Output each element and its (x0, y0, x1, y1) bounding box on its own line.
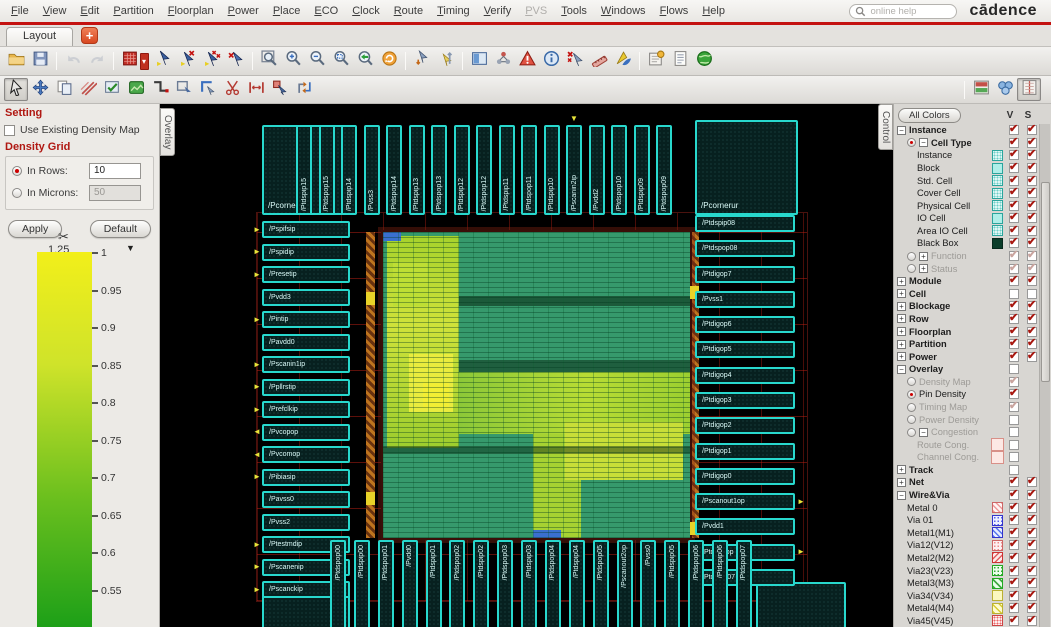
expand-icon[interactable]: + (897, 478, 906, 487)
layer-color-swatch[interactable] (992, 527, 1003, 538)
io-pad[interactable]: /Ptdspip12 (454, 125, 470, 215)
io-pad[interactable]: /Ptdigop5 (695, 341, 795, 358)
collapse-icon[interactable]: − (919, 138, 928, 147)
selectability-checkbox[interactable] (1027, 540, 1037, 550)
corner-cell-ur[interactable]: /Pcornerur (695, 120, 798, 215)
io-pad[interactable]: /Ptdspip03 (521, 540, 537, 627)
deselect-all-flightlines-button[interactable] (224, 50, 248, 73)
selectability-checkbox[interactable] (1027, 125, 1037, 135)
layer-row-black-box[interactable]: Black Box (894, 237, 1041, 250)
selectability-checkbox[interactable] (1027, 138, 1037, 148)
selectability-checkbox[interactable] (1027, 201, 1037, 211)
layer-color-swatch[interactable] (992, 615, 1003, 626)
layer-row-via-01[interactable]: Via 01 (894, 514, 1041, 527)
layer-radio[interactable] (907, 138, 916, 147)
io-pad[interactable]: /Pintip (262, 311, 350, 328)
layer-color-swatch[interactable] (992, 565, 1003, 576)
dropdown-caret-icon[interactable]: ▾ (140, 53, 149, 70)
visibility-checkbox[interactable] (1009, 553, 1019, 563)
undo-button[interactable] (61, 50, 85, 73)
layer-row-std-cell[interactable]: Std. Cell (894, 174, 1041, 187)
layer-row-metal1-m1-[interactable]: Metal1(M1) (894, 527, 1041, 540)
io-pad[interactable]: /Pvcomop (262, 446, 350, 463)
io-pad[interactable]: /Ptdspop02 (449, 540, 465, 627)
layer-color-swatch[interactable] (992, 578, 1003, 589)
layer-row-pin-density[interactable]: Pin Density (894, 388, 1041, 401)
move-tool-button[interactable] (28, 78, 52, 101)
layer-color-swatch[interactable] (992, 175, 1003, 186)
overlay-side-tab[interactable]: Overlay (160, 108, 175, 156)
visibility-checkbox[interactable] (1009, 188, 1019, 198)
selectability-checkbox[interactable] (1027, 503, 1037, 513)
edit-rectangle-button[interactable] (172, 78, 196, 101)
layer-row-density-map[interactable]: Density Map (894, 376, 1041, 389)
layer-color-swatch[interactable] (991, 451, 1004, 464)
io-pad[interactable]: /Ptdspip04 (569, 540, 585, 627)
layer-row-route-cong-[interactable]: Route Cong. (894, 438, 1041, 451)
deselect-flightline-button[interactable] (176, 50, 200, 73)
layer-color-swatch[interactable] (992, 188, 1003, 199)
layer-row-congestion[interactable]: −Congestion (894, 426, 1041, 439)
visibility-checkbox[interactable] (1009, 566, 1019, 576)
layer-row-net[interactable]: +Net (894, 476, 1041, 489)
in-rows-radio[interactable] (12, 166, 22, 176)
io-pad[interactable]: /Pspidip (262, 244, 350, 261)
io-pad[interactable]: /Ptdigop6 (695, 316, 795, 333)
visibility-checkbox[interactable] (1009, 150, 1019, 160)
layer-radio[interactable] (907, 264, 916, 273)
use-existing-density-checkbox[interactable] (4, 125, 15, 136)
add-tab-button[interactable]: + (81, 27, 98, 44)
visibility-checkbox[interactable] (1009, 276, 1019, 286)
select-tool-button[interactable] (4, 78, 28, 101)
menu-file[interactable]: File (4, 3, 36, 19)
io-pad[interactable]: /Ptdigop7 (695, 266, 795, 283)
layer-radio[interactable] (907, 377, 916, 386)
zoom-selected-button[interactable] (329, 50, 353, 73)
panel-toggle-button[interactable] (1017, 78, 1041, 101)
menu-view[interactable]: View (36, 3, 74, 19)
layer-row-module[interactable]: +Module (894, 275, 1041, 288)
all-colors-button[interactable]: All Colors (898, 108, 961, 123)
io-pad[interactable]: /Ptdspop10 (611, 125, 627, 215)
selectability-checkbox[interactable] (1027, 327, 1037, 337)
visibility-checkbox[interactable] (1009, 415, 1019, 425)
in-microns-input[interactable]: 50 (89, 185, 141, 201)
io-pad[interactable]: /Ptdspop15 (319, 125, 335, 215)
io-pad[interactable]: /Ptdspop13 (431, 125, 447, 215)
layer-color-swatch[interactable] (992, 163, 1003, 174)
io-pad[interactable]: /Pvdd0 (402, 540, 418, 627)
default-button[interactable]: Default (90, 220, 151, 238)
io-pad[interactable]: /Ptdspop09 (656, 125, 672, 215)
io-pad[interactable]: /Ptdigop3 (695, 392, 795, 409)
palette-scrollbar[interactable] (1039, 124, 1050, 627)
menu-route[interactable]: Route (387, 3, 430, 19)
in-rows-input[interactable]: 10 (89, 163, 141, 179)
layer-radio[interactable] (907, 403, 916, 412)
colorbar-max-dropdown[interactable]: ▼ (126, 243, 135, 253)
io-pad[interactable]: /Ppllrstip (262, 379, 350, 396)
selectability-checkbox[interactable] (1027, 276, 1037, 286)
violation-browser-button[interactable] (515, 50, 539, 73)
collapse-icon[interactable]: − (897, 491, 906, 500)
io-pad[interactable]: /Ptdspop08 (695, 240, 795, 257)
layer-row-via45-v45-[interactable]: Via45(V45) (894, 615, 1041, 627)
layer-row-metal-0[interactable]: Metal 0 (894, 501, 1041, 514)
menu-eco[interactable]: ECO (307, 3, 345, 19)
io-pad[interactable]: /Ptdigop2 (695, 417, 795, 434)
layer-row-wire-via[interactable]: −Wire&Via (894, 489, 1041, 502)
log-viewer-button[interactable] (668, 50, 692, 73)
expand-icon[interactable]: + (919, 264, 928, 273)
selectability-checkbox[interactable] (1027, 528, 1037, 538)
layer-row-function[interactable]: +Function (894, 250, 1041, 263)
design-hierarchy-button[interactable] (491, 50, 515, 73)
selectability-checkbox[interactable] (1027, 301, 1037, 311)
io-pad[interactable]: /Ptdigop1 (695, 443, 795, 460)
layer-color-swatch[interactable] (992, 552, 1003, 563)
io-pad[interactable]: /Ptdspip02 (473, 540, 489, 627)
layer-color-swatch[interactable] (992, 603, 1003, 614)
selectability-checkbox[interactable] (1027, 289, 1037, 299)
collapse-icon[interactable]: − (919, 428, 928, 437)
spacing-tool-button[interactable] (244, 78, 268, 101)
expand-icon[interactable]: + (919, 252, 928, 261)
expand-icon[interactable]: + (897, 277, 906, 286)
io-pad[interactable]: /Pibiasip (262, 469, 350, 486)
select-all-flightlines-button[interactable] (200, 50, 224, 73)
visibility-checkbox[interactable] (1009, 616, 1019, 626)
selectability-checkbox[interactable] (1027, 150, 1037, 160)
io-pad[interactable]: /Ptdspip01 (426, 540, 442, 627)
zoom-fit-button[interactable] (257, 50, 281, 73)
layer-row-power[interactable]: +Power (894, 350, 1041, 363)
io-pad[interactable]: /Pvdd3 (262, 289, 350, 306)
selectability-checkbox[interactable] (1027, 163, 1037, 173)
visibility-checkbox[interactable] (1009, 226, 1019, 236)
set-view-down-button[interactable] (410, 50, 434, 73)
visibility-checkbox[interactable] (1009, 238, 1019, 248)
selectability-checkbox[interactable] (1027, 176, 1037, 186)
layer-row-block[interactable]: Block (894, 162, 1041, 175)
apply-button[interactable]: Apply (8, 220, 62, 238)
layer-row-track[interactable]: +Track (894, 464, 1041, 477)
menu-verify[interactable]: Verify (477, 3, 519, 19)
density-color-scale[interactable] (37, 252, 92, 627)
layer-row-status[interactable]: +Status (894, 262, 1041, 275)
snapshot-button[interactable] (124, 78, 148, 101)
visibility-checkbox[interactable] (1009, 251, 1019, 261)
edit-form-button[interactable] (644, 50, 668, 73)
design-browser-button[interactable] (993, 78, 1017, 101)
layer-row-overlay[interactable]: −Overlay (894, 363, 1041, 376)
visibility-checkbox[interactable] (1009, 427, 1019, 437)
layer-color-button[interactable]: ▾ (118, 50, 152, 73)
io-pad[interactable]: /Pvdd2 (589, 125, 605, 215)
visibility-checkbox[interactable] (1009, 201, 1019, 211)
visibility-checkbox[interactable] (1009, 540, 1019, 550)
io-pad[interactable]: /Ptdspip11 (499, 125, 515, 215)
visibility-checkbox[interactable] (1009, 301, 1019, 311)
io-pad[interactable]: /Pavss0 (262, 491, 350, 508)
menu-flows[interactable]: Flows (653, 3, 696, 19)
selectability-checkbox[interactable] (1027, 566, 1037, 576)
selectability-checkbox[interactable] (1027, 264, 1037, 274)
visibility-checkbox[interactable] (1009, 402, 1019, 412)
layer-row-via34-v34-[interactable]: Via34(V34) (894, 589, 1041, 602)
layer-row-power-density[interactable]: Power Density (894, 413, 1041, 426)
collapse-icon[interactable]: − (897, 365, 906, 374)
expand-icon[interactable]: + (897, 302, 906, 311)
io-pad[interactable]: /Prefclkip (262, 401, 350, 418)
visibility-checkbox[interactable] (1009, 327, 1019, 337)
layer-color-swatch[interactable] (991, 438, 1004, 451)
layer-radio[interactable] (907, 390, 916, 399)
layer-row-area-io-cell[interactable]: Area IO Cell (894, 225, 1041, 238)
layer-row-row[interactable]: +Row (894, 313, 1041, 326)
selectability-checkbox[interactable] (1027, 515, 1037, 525)
layer-radio[interactable] (907, 415, 916, 424)
io-pad[interactable]: /Ptdspop03 (497, 540, 513, 627)
visibility-checkbox[interactable] (1009, 440, 1019, 450)
io-pad[interactable]: /Ptdspip06 (712, 540, 728, 627)
layer-color-swatch[interactable] (992, 515, 1003, 526)
selectability-checkbox[interactable] (1027, 603, 1037, 613)
io-pad[interactable]: /Ptdspip10 (544, 125, 560, 215)
layer-row-metal3-m3-[interactable]: Metal3(M3) (894, 577, 1041, 590)
visibility-checkbox[interactable] (1009, 591, 1019, 601)
menu-power[interactable]: Power (221, 3, 266, 19)
layer-color-swatch[interactable] (992, 590, 1003, 601)
visibility-checkbox[interactable] (1009, 364, 1019, 374)
online-help-search[interactable]: online help (849, 4, 957, 19)
visibility-checkbox[interactable] (1009, 352, 1019, 362)
menu-pvs[interactable]: PVS (518, 3, 554, 19)
visibility-checkbox[interactable] (1009, 477, 1019, 487)
io-pad[interactable]: /Ptdigop0 (695, 468, 795, 485)
color-preferences-button[interactable] (611, 50, 635, 73)
visibility-checkbox[interactable] (1009, 339, 1019, 349)
io-pad[interactable]: /Ptdspip15 (296, 125, 312, 215)
visibility-checkbox[interactable] (1009, 125, 1019, 135)
io-pad[interactable]: /Ptdspop12 (476, 125, 492, 215)
layer-color-swatch[interactable] (992, 502, 1003, 513)
layer-color-swatch[interactable] (992, 225, 1003, 236)
menu-place[interactable]: Place (266, 3, 308, 19)
io-pad[interactable]: /Ptdspop04 (545, 540, 561, 627)
selectability-checkbox[interactable] (1027, 616, 1037, 626)
layer-row-cell[interactable]: +Cell (894, 288, 1041, 301)
io-pad[interactable]: /Ptdspip08 (695, 215, 795, 232)
scrollbar-thumb[interactable] (1041, 182, 1050, 382)
menu-partition[interactable]: Partition (106, 3, 160, 19)
menu-timing[interactable]: Timing (430, 3, 477, 19)
in-microns-radio[interactable] (12, 188, 22, 198)
zoom-out-button[interactable] (305, 50, 329, 73)
io-pad[interactable]: /Ptdspip05 (664, 540, 680, 627)
layer-color-swatch[interactable] (992, 150, 1003, 161)
io-pad[interactable]: /Ptdspop06 (688, 540, 704, 627)
visibility-checkbox[interactable] (1009, 176, 1019, 186)
visibility-checkbox[interactable] (1009, 314, 1019, 324)
layer-row-physical-cell[interactable]: Physical Cell (894, 199, 1041, 212)
summary-report-button[interactable] (467, 50, 491, 73)
design-info-button[interactable] (539, 50, 563, 73)
io-pad[interactable]: /Ptdspop01 (378, 540, 394, 627)
layer-row-blockage[interactable]: +Blockage (894, 300, 1041, 313)
visibility-checkbox[interactable] (1009, 213, 1019, 223)
selectability-checkbox[interactable] (1027, 188, 1037, 198)
expand-icon[interactable]: + (897, 289, 906, 298)
layer-color-swatch[interactable] (992, 200, 1003, 211)
visibility-checkbox[interactable] (1009, 515, 1019, 525)
selectability-checkbox[interactable] (1027, 591, 1037, 601)
layer-color-swatch[interactable] (992, 540, 1003, 551)
visibility-checkbox[interactable] (1009, 138, 1019, 148)
attach-tool-button[interactable] (268, 78, 292, 101)
layer-row-via23-v23-[interactable]: Via23(V23) (894, 564, 1041, 577)
layer-row-instance[interactable]: −Instance (894, 124, 1041, 137)
selectability-checkbox[interactable] (1027, 251, 1037, 261)
io-pad[interactable]: /Pscanout2op (617, 540, 633, 627)
menu-clock[interactable]: Clock (345, 3, 387, 19)
flip-tool-button[interactable] (292, 78, 316, 101)
io-pad[interactable]: /Pvss0 (640, 540, 656, 627)
selectability-checkbox[interactable] (1027, 226, 1037, 236)
menu-help[interactable]: Help (695, 3, 732, 19)
selectability-checkbox[interactable] (1027, 352, 1037, 362)
expand-icon[interactable]: + (897, 352, 906, 361)
layer-row-metal4-m4-[interactable]: Metal4(M4) (894, 602, 1041, 615)
layer-row-channel-cong-[interactable]: Channel Cong. (894, 451, 1041, 464)
io-pad[interactable]: /Pvdd1 (695, 518, 795, 535)
menu-tools[interactable]: Tools (554, 3, 594, 19)
set-view-up-button[interactable] (434, 50, 458, 73)
io-pad[interactable]: /Pvcopop (262, 424, 350, 441)
io-pad[interactable]: /Ptdigop4 (695, 367, 795, 384)
io-pad[interactable]: /Ptdspop14 (386, 125, 402, 215)
copy-tool-button[interactable] (52, 78, 76, 101)
move-reshape-tool-button[interactable] (196, 78, 220, 101)
layer-radio[interactable] (907, 428, 916, 437)
selectability-checkbox[interactable] (1027, 213, 1037, 223)
visibility-checkbox[interactable] (1009, 528, 1019, 538)
selectability-checkbox[interactable] (1027, 314, 1037, 324)
selectability-checkbox[interactable] (1027, 477, 1037, 487)
expand-icon[interactable]: + (897, 327, 906, 336)
io-pad[interactable]: /Pvss1 (695, 291, 795, 308)
cut-wire-tool-button[interactable] (220, 78, 244, 101)
io-pad[interactable]: /Pvss3 (364, 125, 380, 215)
ruler-button[interactable] (587, 50, 611, 73)
layer-radio[interactable] (907, 252, 916, 261)
selectability-checkbox[interactable] (1027, 490, 1037, 500)
deselect-all-button[interactable] (563, 50, 587, 73)
selectability-checkbox[interactable] (1027, 578, 1037, 588)
control-side-tab[interactable]: Control (878, 104, 893, 150)
menu-floorplan[interactable]: Floorplan (161, 3, 221, 19)
layer-row-instance[interactable]: Instance (894, 149, 1041, 162)
layer-color-swatch[interactable] (992, 213, 1003, 224)
open-button[interactable] (4, 50, 28, 73)
io-pad[interactable]: /Presetip (262, 266, 350, 283)
io-pad[interactable]: /Ptdspop05 (593, 540, 609, 627)
zoom-previous-button[interactable] (353, 50, 377, 73)
io-pad[interactable]: /Pscanin2ip (566, 125, 582, 215)
io-pad[interactable]: /Ptdspop07 (736, 540, 752, 627)
layer-row-metal2-m2-[interactable]: Metal2(M2) (894, 552, 1041, 565)
display-options-button[interactable] (969, 78, 993, 101)
save-button[interactable] (28, 50, 52, 73)
collapse-icon[interactable]: − (897, 126, 906, 135)
layer-row-timing-map[interactable]: Timing Map (894, 401, 1041, 414)
selectability-checkbox[interactable] (1027, 339, 1037, 349)
zoom-in-button[interactable] (281, 50, 305, 73)
layer-color-swatch[interactable] (992, 238, 1003, 249)
visibility-checkbox[interactable] (1009, 289, 1019, 299)
io-pad[interactable]: /Ptdspip14 (341, 125, 357, 215)
visibility-checkbox[interactable] (1009, 465, 1019, 475)
expand-icon[interactable]: + (897, 340, 906, 349)
io-pad[interactable]: /Ptdspop00 (330, 540, 346, 627)
layer-row-via12-v12-[interactable]: Via12(V12) (894, 539, 1041, 552)
io-pad[interactable]: /Ptdspip13 (409, 125, 425, 215)
corner-cell-lr[interactable] (756, 582, 846, 627)
tab-layout[interactable]: Layout (6, 27, 73, 46)
io-pad[interactable]: /Ptdspop11 (521, 125, 537, 215)
layer-row-io-cell[interactable]: IO Cell (894, 212, 1041, 225)
layout-canvas[interactable]: Overlay Control /Pcornerul /Pcornerur /P… (160, 104, 893, 627)
menu-windows[interactable]: Windows (594, 3, 653, 19)
redraw-button[interactable] (377, 50, 401, 73)
expand-icon[interactable]: + (897, 314, 906, 323)
io-pad[interactable]: /Pavdd0 (262, 334, 350, 351)
bottom-pin-row: /Ptdspop00/Ptdspip00/Ptdspop01/Pvdd0/Ptd… (330, 540, 752, 627)
visibility-checkbox[interactable] (1009, 163, 1019, 173)
layer-row-cell-type[interactable]: −Cell Type (894, 137, 1041, 150)
selectability-checkbox[interactable] (1027, 238, 1037, 248)
visibility-checkbox[interactable] (1009, 503, 1019, 513)
layer-row-floorplan[interactable]: +Floorplan (894, 325, 1041, 338)
create-wire-tool-button[interactable] (148, 78, 172, 101)
io-pad[interactable]: /Pvss2 (262, 514, 350, 531)
visibility-checkbox[interactable] (1009, 490, 1019, 500)
online-docs-button[interactable] (692, 50, 716, 73)
layer-row-cover-cell[interactable]: Cover Cell (894, 187, 1041, 200)
io-pad[interactable]: /Ptdspip09 (634, 125, 650, 215)
visibility-checkbox[interactable] (1009, 578, 1019, 588)
io-pad[interactable]: /Pspifsip (262, 221, 350, 238)
edit-wire-tool-button[interactable] (76, 78, 100, 101)
io-pad[interactable]: /Ptdspip00 (354, 540, 370, 627)
layer-row-partition[interactable]: +Partition (894, 338, 1041, 351)
visibility-checkbox[interactable] (1009, 264, 1019, 274)
verify-geometry-button[interactable] (100, 78, 124, 101)
die-pin-density-map[interactable] (383, 232, 690, 538)
select-flightline-button[interactable] (152, 50, 176, 73)
io-pad[interactable]: /Pscanin1ip (262, 356, 350, 373)
redo-button[interactable] (85, 50, 109, 73)
io-pad[interactable]: /Pscanout1op (695, 493, 795, 510)
visibility-checkbox[interactable] (1009, 389, 1019, 399)
visibility-checkbox[interactable] (1009, 377, 1019, 387)
menu-edit[interactable]: Edit (73, 3, 106, 19)
visibility-checkbox[interactable] (1009, 452, 1019, 462)
selectability-checkbox[interactable] (1027, 553, 1037, 563)
expand-icon[interactable]: + (897, 465, 906, 474)
visibility-checkbox[interactable] (1009, 603, 1019, 613)
